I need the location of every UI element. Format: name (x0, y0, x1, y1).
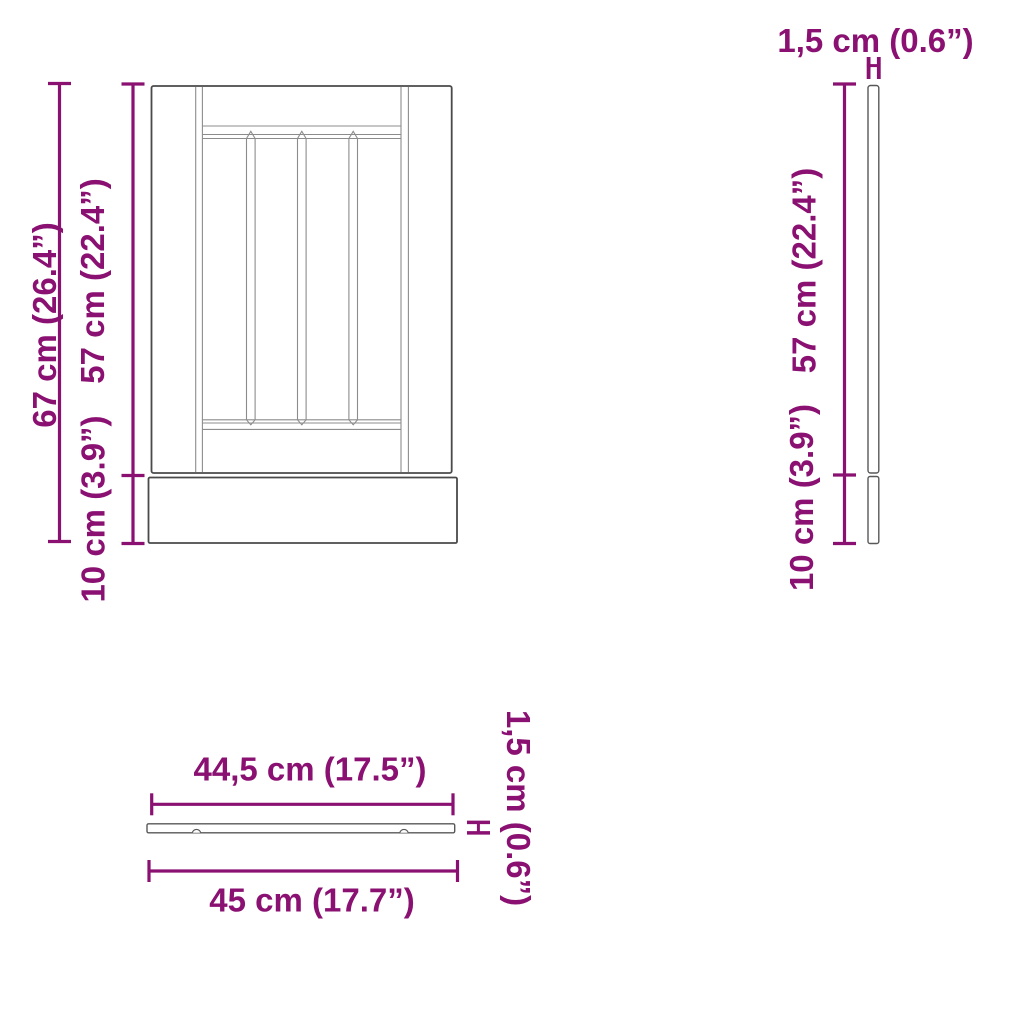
svg-text:45 cm (17.7”): 45 cm (17.7”) (209, 882, 414, 919)
svg-text:1,5 cm (0.6”): 1,5 cm (0.6”) (500, 710, 537, 906)
svg-text:10 cm (3.9”): 10 cm (3.9”) (783, 404, 820, 591)
svg-text:67 cm (26.4”): 67 cm (26.4”) (26, 222, 63, 427)
svg-text:10 cm (3.9”): 10 cm (3.9”) (75, 415, 112, 602)
svg-text:44,5 cm (17.5”): 44,5 cm (17.5”) (194, 751, 427, 788)
svg-text:57 cm (22.4”): 57 cm (22.4”) (786, 168, 823, 373)
svg-text:1,5 cm (0.6”): 1,5 cm (0.6”) (777, 22, 973, 59)
svg-text:57 cm (22.4”): 57 cm (22.4”) (74, 178, 111, 383)
